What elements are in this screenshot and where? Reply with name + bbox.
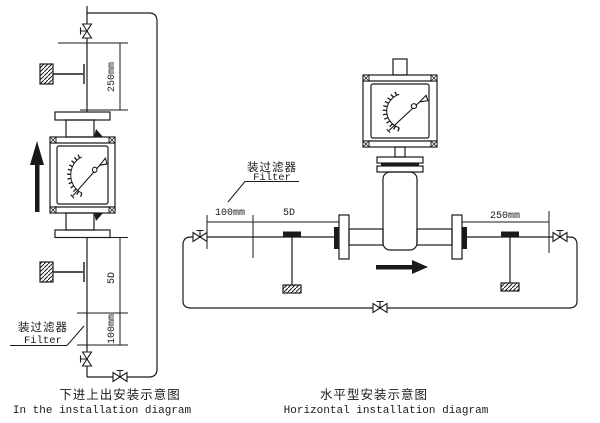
vertical-installation-diagram: 250mm	[10, 6, 192, 417]
meter-neck	[395, 147, 405, 157]
dim-label-5d: 5D	[107, 272, 118, 284]
screw-icon	[363, 141, 369, 147]
flange	[339, 215, 349, 259]
pipe-lines	[87, 6, 157, 377]
dim-label-100mm: 100mm	[215, 208, 245, 219]
flange-plate	[55, 112, 110, 120]
dial-window	[371, 84, 429, 138]
installation-figure: 250mm	[0, 0, 600, 423]
pipe-stub	[349, 229, 383, 245]
flow-direction-up-arrow	[30, 141, 44, 212]
valve-icon	[81, 24, 92, 38]
meter-neck	[66, 120, 94, 137]
meter-housing	[50, 137, 115, 213]
filter-label-en: Filter	[253, 172, 291, 184]
dimension-100mm-5d: 100mm 5D	[207, 208, 339, 258]
dimension-250mm: 250mm	[58, 43, 128, 110]
flange-plate	[377, 166, 423, 172]
valve-icon	[193, 231, 207, 242]
dim-label-100mm: 100mm	[107, 314, 118, 344]
meter-neck	[393, 59, 407, 75]
installation-diagrams-svg: 250mm	[0, 0, 600, 423]
screw-icon	[109, 137, 115, 143]
caption-en: Horizontal installation diagram	[284, 405, 489, 417]
pipe-stub	[417, 229, 452, 245]
flowmeter-horizontal	[334, 59, 467, 259]
screw-icon	[50, 137, 56, 143]
screw-icon	[431, 141, 437, 147]
valve-icon	[113, 371, 127, 382]
screw-icon	[363, 75, 369, 81]
caption-zh: 水平型安装示意图	[320, 387, 428, 402]
dial-window	[57, 146, 108, 204]
wall-bracket-upper	[40, 64, 84, 84]
horizontal-installation-diagram: 100mm 5D 250mm 装过滤器 Filter	[183, 59, 577, 417]
filter-callout: 装过滤器 Filter	[228, 160, 299, 202]
flowmeter-vertical	[50, 112, 115, 238]
meter-neck	[66, 213, 94, 230]
dim-label-250mm: 250mm	[490, 211, 520, 222]
valve-icon	[373, 302, 387, 313]
valve-icon	[553, 231, 567, 242]
filter-label-zh: 装过滤器	[18, 320, 68, 334]
pipe-support-right	[501, 232, 519, 292]
gasket	[334, 227, 339, 249]
orientation-marker	[94, 129, 103, 137]
wall-bracket-lower	[40, 262, 84, 282]
screw-icon	[109, 207, 115, 213]
orientation-marker	[94, 213, 103, 221]
dim-label-250mm: 250mm	[107, 62, 118, 92]
pipe-support-left	[283, 232, 301, 294]
meter-housing	[363, 75, 437, 147]
flange	[452, 215, 462, 259]
pipe-lines	[183, 237, 577, 308]
gauge-dial-icon	[383, 92, 428, 133]
meter-body	[383, 172, 417, 250]
gauge-dial-icon	[67, 155, 107, 199]
flange-plate	[55, 230, 110, 238]
gasket	[462, 227, 467, 249]
caption-en: In the installation diagram	[13, 405, 192, 417]
caption-zh: 下进上出安装示意图	[59, 387, 181, 402]
dim-label-5d: 5D	[283, 208, 295, 219]
flange-plate	[377, 157, 423, 163]
screw-icon	[50, 207, 56, 213]
screw-icon	[431, 75, 437, 81]
filter-callout: 装过滤器 Filter	[10, 320, 84, 347]
valve-icon	[81, 352, 92, 366]
flow-direction-right-arrow	[376, 260, 428, 274]
